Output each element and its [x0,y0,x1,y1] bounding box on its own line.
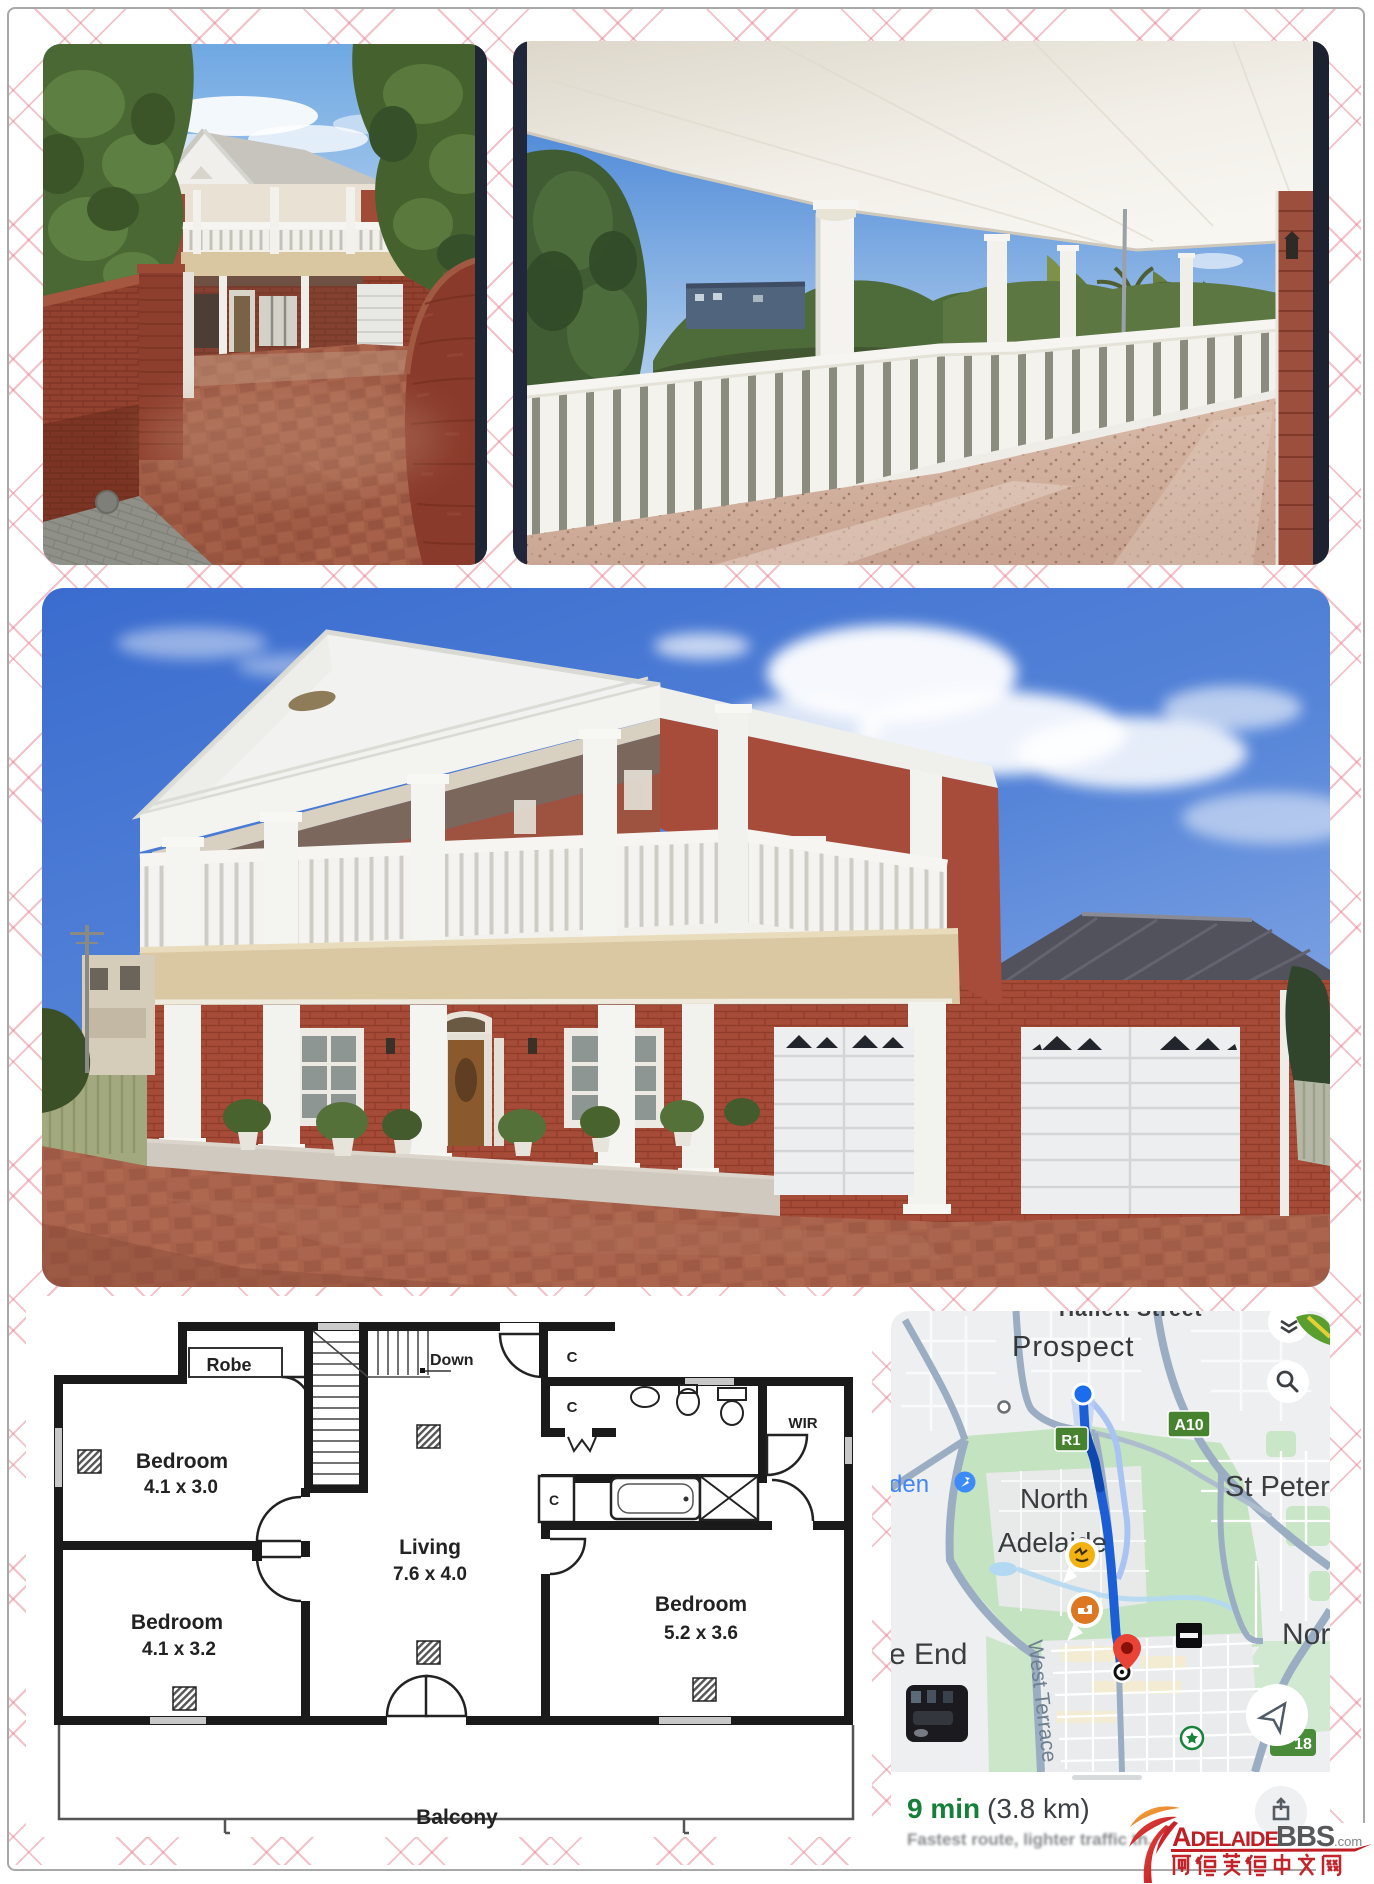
svg-text:BBS: BBS [1276,1821,1335,1853]
svg-text:.com: .com [1334,1834,1362,1849]
svg-text:ADELAIDE: ADELAIDE [1172,1822,1279,1852]
